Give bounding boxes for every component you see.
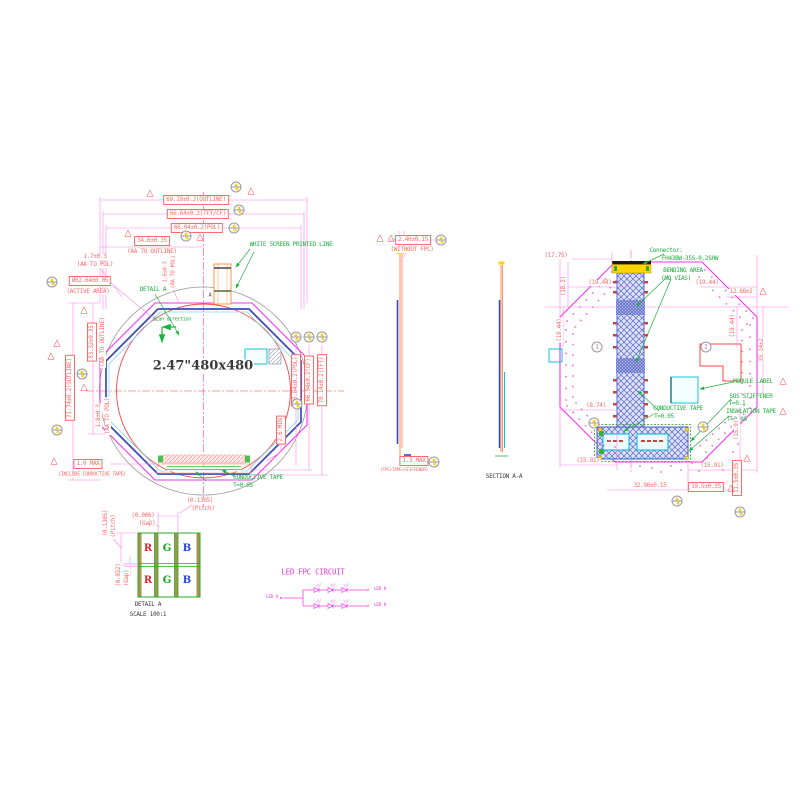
tail-led-2 xyxy=(599,449,604,454)
led-symbols xyxy=(314,588,347,609)
detail-a-dimension-lines xyxy=(111,505,192,576)
band-end-right xyxy=(245,456,250,463)
section1-stiffener xyxy=(404,454,411,458)
black-matrix-strips xyxy=(138,533,200,597)
section-view-2 xyxy=(495,262,508,457)
front-dimension-lines xyxy=(68,197,328,480)
tail-led-1 xyxy=(599,431,604,436)
module-label-area xyxy=(671,377,698,403)
sus-stiffener-outline xyxy=(700,344,741,381)
pixel-grid-lines xyxy=(138,533,200,597)
scan-direction-arrow xyxy=(162,327,176,342)
bending-area-2 xyxy=(616,358,645,373)
connector-key-left xyxy=(614,266,617,271)
fpc-stub xyxy=(214,264,231,304)
front-view xyxy=(68,192,344,508)
driver-zone-band xyxy=(163,455,245,463)
connector-key-right xyxy=(646,266,649,271)
section1-dim-lines xyxy=(389,231,436,461)
rear-view xyxy=(545,250,788,493)
led-emission-arrows xyxy=(316,584,349,603)
fpc-strip xyxy=(617,273,644,428)
pixel-grid-outline xyxy=(138,533,200,597)
drawing-canvas xyxy=(0,0,800,800)
lcd-module-engineering-drawing: 69.19±0.2(OUTLINE)66.64±0.2(TFT/CF)66.04… xyxy=(0,0,800,800)
led-wiring xyxy=(283,590,367,606)
section1-top-cap xyxy=(398,252,404,255)
sus-leader xyxy=(691,399,731,441)
cog-hatch-area xyxy=(269,349,281,364)
fpc-connector xyxy=(612,265,651,274)
section-view-1 xyxy=(389,231,436,462)
conductive-tape-hatch xyxy=(167,466,241,472)
band-end-left xyxy=(158,456,163,463)
detail-a-view xyxy=(111,505,200,597)
white-screen-leader-2 xyxy=(236,252,254,288)
detail-a-leader xyxy=(155,294,179,335)
insulation-leader xyxy=(689,416,729,451)
led-fpc-circuit xyxy=(280,584,369,609)
module-label-leader xyxy=(700,382,733,389)
section2-top-cap xyxy=(499,262,505,265)
cog-area xyxy=(245,349,267,364)
